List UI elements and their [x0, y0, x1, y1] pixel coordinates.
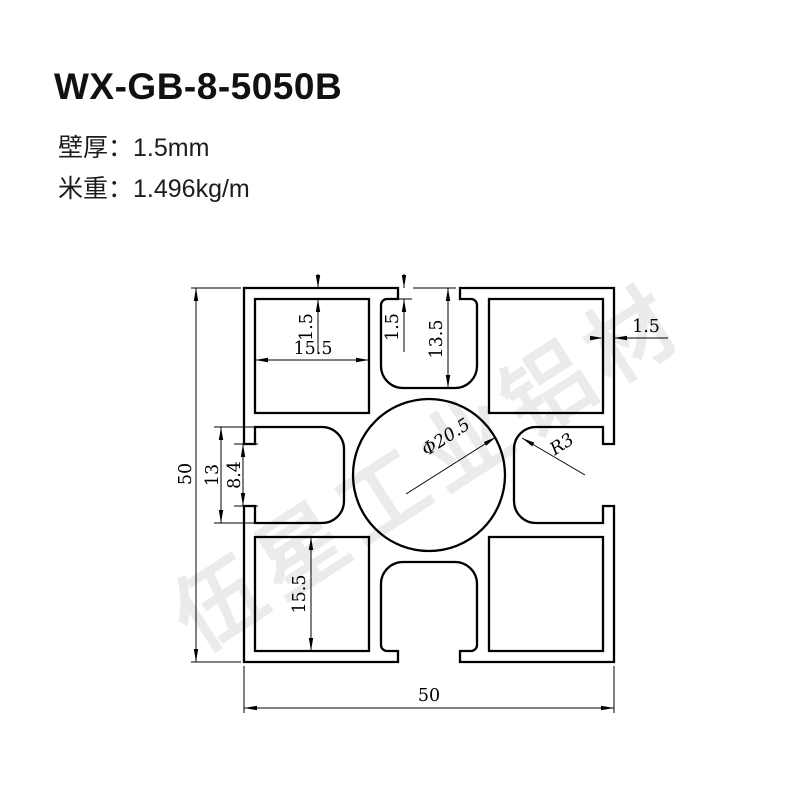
- dim-groove-text: 13: [203, 464, 223, 486]
- dim-cavity-h-arrow-top: [309, 537, 313, 550]
- dim-width-arrow-left: [244, 706, 257, 710]
- dim-wall-top-arrow-down: [316, 275, 320, 288]
- dim-groove-arrow-top: [219, 427, 223, 440]
- dim-cavity-w-text: 15.5: [294, 339, 333, 359]
- profile-drawing: 50 13 8.4 15.5 1.5 1.5 13.5: [0, 0, 800, 800]
- dim-wall-top-text: 1.5: [297, 313, 317, 341]
- dim-wall-right-arrow-out: [614, 336, 627, 340]
- dim-radius-arrow: [521, 436, 534, 446]
- dim-height-text: 50: [176, 463, 196, 485]
- dim-depth-arrow-top: [446, 288, 450, 301]
- dim-cavity-h-arrow-bottom: [309, 638, 313, 651]
- dim-depth-text: 13.5: [427, 320, 447, 359]
- cavity-top-right: [489, 299, 603, 413]
- dim-lip-text: 1.5: [383, 313, 403, 341]
- dim-opening-arrow-top: [241, 444, 245, 457]
- dim-wall-right-text: 1.5: [632, 317, 660, 337]
- dim-opening-arrow-bottom: [241, 493, 245, 506]
- dim-groove-arrow-bottom: [219, 510, 223, 523]
- cavity-bottom-left: [255, 537, 369, 651]
- dim-height-arrow-top: [194, 288, 198, 301]
- dim-wall-top-arrow-up: [316, 299, 320, 312]
- dim-depth-arrow-bottom: [446, 375, 450, 388]
- cavity-bottom-right: [489, 537, 603, 651]
- dim-lip-arrow-down: [402, 275, 406, 288]
- dim-lip-arrow-up: [402, 299, 406, 312]
- dim-width-text: 50: [418, 686, 440, 706]
- dim-height-arrow-bottom: [194, 649, 198, 662]
- dim-cavity-h-text: 15.5: [290, 575, 310, 614]
- dim-hole-text: Φ20.5: [418, 415, 474, 461]
- dim-opening-text: 8.4: [225, 461, 245, 489]
- page: WX-GB-8-5050B 壁厚：1.5mm 米重：1.496kg/m 伍星工业…: [0, 0, 800, 800]
- dim-radius-text: R3: [546, 430, 578, 461]
- dim-cavity-w-arrow-right: [356, 358, 369, 362]
- dim-width-arrow-right: [601, 706, 614, 710]
- center-hole: [353, 399, 505, 551]
- dim-wall-right-arrow-in: [590, 336, 603, 340]
- dim-cavity-w-arrow-left: [255, 358, 268, 362]
